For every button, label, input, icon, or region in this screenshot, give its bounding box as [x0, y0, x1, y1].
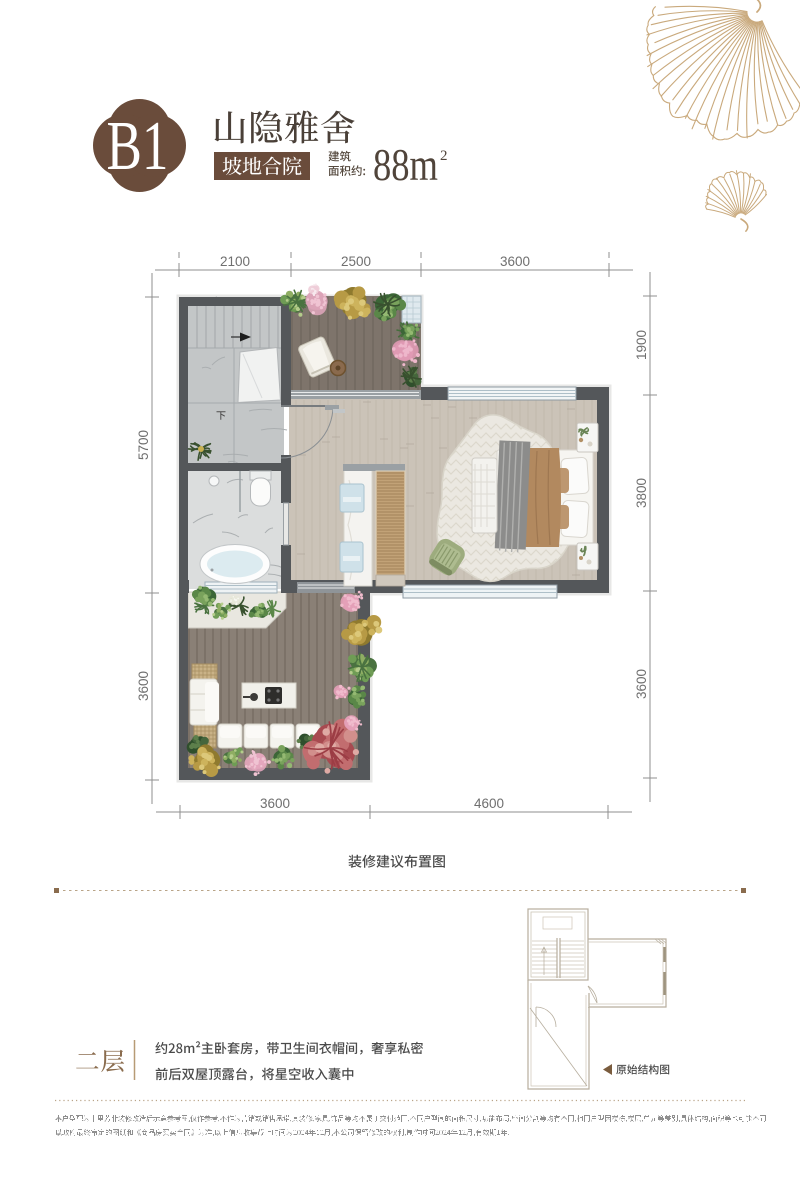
svg-text:3600: 3600	[260, 796, 290, 811]
svg-text:B1: B1	[107, 108, 169, 185]
svg-text:88m: 88m	[373, 140, 438, 190]
svg-text:3800: 3800	[634, 478, 649, 508]
svg-text:4600: 4600	[474, 796, 504, 811]
svg-text:2500: 2500	[341, 254, 371, 269]
svg-text:2100: 2100	[220, 254, 250, 269]
svg-text:3600: 3600	[500, 254, 530, 269]
svg-text:3600: 3600	[136, 671, 151, 701]
svg-text:3600: 3600	[634, 669, 649, 699]
svg-text:2: 2	[440, 148, 448, 164]
svg-text:5700: 5700	[136, 430, 151, 460]
svg-text:1900: 1900	[634, 330, 649, 360]
